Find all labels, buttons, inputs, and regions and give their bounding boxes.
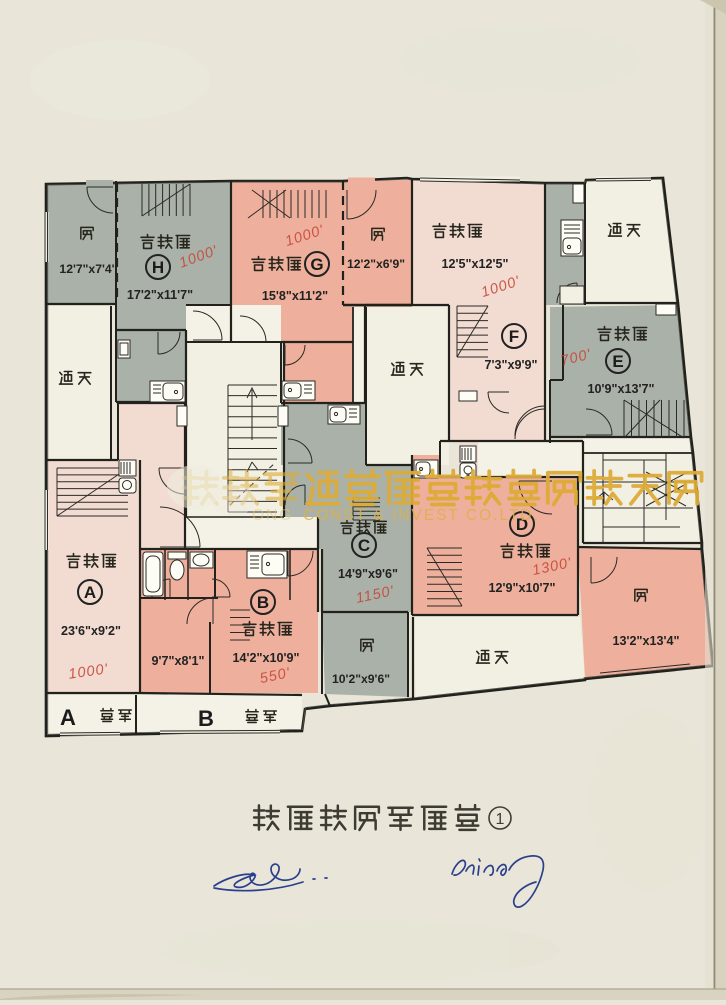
svg-text:15'8"x11'2": 15'8"x11'2" — [262, 289, 328, 303]
svg-text:B: B — [198, 706, 214, 731]
svg-text:E: E — [612, 352, 623, 371]
svg-text:9'7"x8'1": 9'7"x8'1" — [152, 654, 205, 668]
svg-text:10'2"x9'6": 10'2"x9'6" — [332, 672, 390, 686]
svg-text:1: 1 — [496, 811, 505, 828]
svg-text:C: C — [358, 536, 370, 555]
svg-text:17'2"x11'7": 17'2"x11'7" — [127, 288, 193, 302]
svg-text:H: H — [152, 258, 164, 277]
svg-text:12'2"x6'9": 12'2"x6'9" — [347, 257, 405, 271]
svg-text:12'7"x7'4': 12'7"x7'4' — [59, 262, 114, 276]
svg-text:12'9"x10'7": 12'9"x10'7" — [489, 581, 556, 595]
svg-text:F: F — [509, 327, 519, 346]
svg-text:14'2"x10'9": 14'2"x10'9" — [233, 651, 300, 665]
svg-text:A: A — [60, 705, 76, 730]
svg-text:A: A — [84, 583, 96, 602]
svg-text:10'9"x13'7": 10'9"x13'7" — [588, 382, 655, 396]
svg-text:ONG: ONG — [252, 507, 293, 524]
svg-text:23'6"x9'2": 23'6"x9'2" — [61, 624, 121, 638]
svg-text:14'9"x9'6": 14'9"x9'6" — [338, 567, 398, 581]
svg-text:CONST & INVEST CO.LTD.: CONST & INVEST CO.LTD. — [303, 507, 540, 524]
svg-text:B: B — [257, 593, 269, 612]
svg-text:12'5"x12'5": 12'5"x12'5" — [442, 257, 509, 271]
svg-text:13'2"x13'4": 13'2"x13'4" — [613, 634, 680, 648]
svg-text:G: G — [310, 255, 323, 274]
svg-text:7'3"x9'9": 7'3"x9'9" — [485, 358, 538, 372]
